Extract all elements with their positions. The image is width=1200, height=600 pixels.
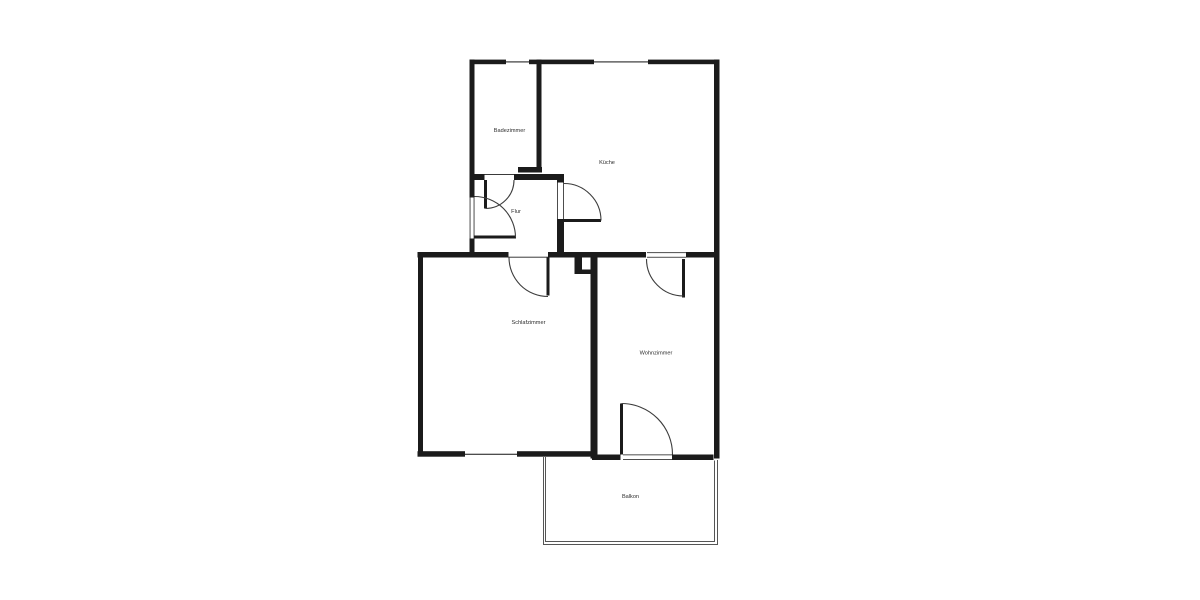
svg-text:Flur: Flur	[511, 209, 521, 215]
svg-text:Schlafzimmer: Schlafzimmer	[512, 320, 546, 326]
svg-text:Wohnzimmer: Wohnzimmer	[640, 351, 673, 357]
svg-text:Badezimmer: Badezimmer	[494, 128, 526, 134]
svg-text:Küche: Küche	[599, 160, 615, 166]
svg-text:Balkon: Balkon	[622, 494, 639, 500]
